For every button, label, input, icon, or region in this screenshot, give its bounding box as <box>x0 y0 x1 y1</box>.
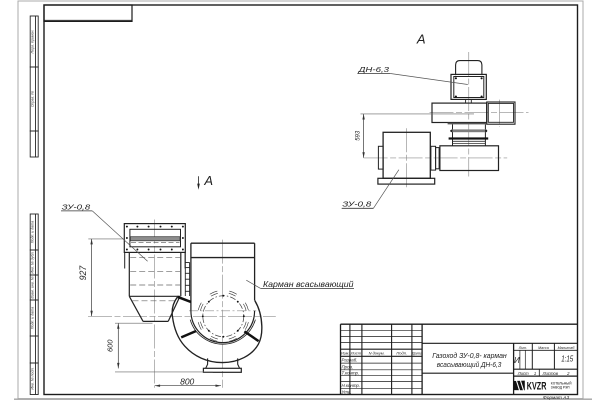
svg-text:Изм.: Изм. <box>341 351 350 356</box>
svg-text:800: 800 <box>180 377 195 386</box>
svg-text:Утв.: Утв. <box>342 389 352 394</box>
svg-text:Н.контр.: Н.контр. <box>342 383 361 388</box>
svg-text:ЗУ-0,8: ЗУ-0,8 <box>342 202 371 209</box>
svg-text:Карман всасывающий: Карман всасывающий <box>263 279 354 289</box>
svg-text:1:15: 1:15 <box>561 354 573 364</box>
svg-text:Т.контр.: Т.контр. <box>342 371 360 376</box>
svg-text:Перв. примен.: Перв. примен. <box>31 30 35 54</box>
svg-text:593: 593 <box>355 130 361 141</box>
svg-text:всасывающий ДН-6,3: всасывающий ДН-6,3 <box>437 360 502 369</box>
svg-text:Подп. и дата: Подп. и дата <box>31 221 35 244</box>
svg-text:Масштаб: Масштаб <box>558 346 576 350</box>
svg-text:Дата: Дата <box>411 351 423 356</box>
svg-text:Инв. № дубл.: Инв. № дубл. <box>31 251 35 273</box>
svg-text:1: 1 <box>534 371 536 376</box>
svg-text:Взам. инв. №: Взам. инв. № <box>31 276 35 298</box>
svg-text:ДН-6,3: ДН-6,3 <box>357 67 389 74</box>
svg-text:Лит.: Лит. <box>518 346 527 350</box>
svg-text:Лист: Лист <box>350 351 362 356</box>
svg-text:Подп.: Подп. <box>396 351 407 356</box>
svg-text:KVZR: KVZR <box>527 381 547 393</box>
svg-text:Лист: Лист <box>517 371 529 376</box>
svg-text:ЗУ-0,8: ЗУ-0,8 <box>62 204 91 211</box>
svg-text:А: А <box>203 173 213 188</box>
svg-text:И: И <box>514 356 520 365</box>
svg-text:Подп. и дата: Подп. и дата <box>31 307 35 330</box>
svg-text:Пров.: Пров. <box>342 364 354 369</box>
svg-text:Справ. №: Справ. № <box>31 91 35 107</box>
svg-text:А: А <box>416 32 426 47</box>
svg-text:Формат А3: Формат А3 <box>543 395 570 400</box>
svg-text:ЗАВОД РЭП: ЗАВОД РЭП <box>551 386 571 390</box>
svg-text:600: 600 <box>105 339 114 352</box>
svg-text:Разраб.: Разраб. <box>342 358 358 363</box>
svg-text:Масса: Масса <box>538 346 549 350</box>
svg-text:927: 927 <box>78 265 88 281</box>
svg-text:N докум.: N докум. <box>369 351 385 356</box>
svg-text:Листов: Листов <box>542 371 559 376</box>
svg-text:Инв. № подл.: Инв. № подл. <box>31 367 35 389</box>
